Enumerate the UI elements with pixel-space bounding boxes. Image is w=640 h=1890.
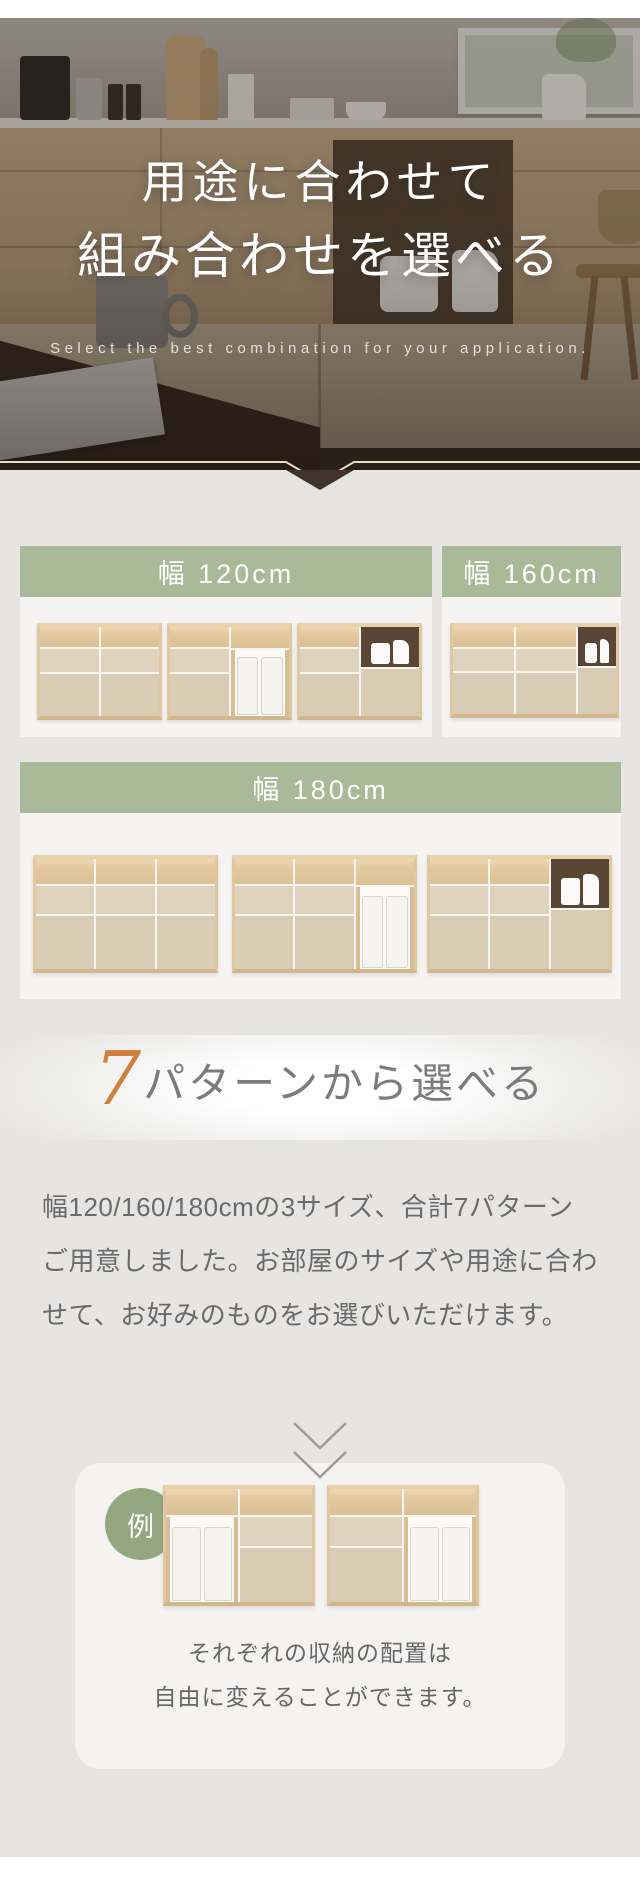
cabinet-image-120-c <box>297 623 422 720</box>
example-caption-line2: 自由に変えることができます。 <box>75 1675 565 1719</box>
hero-chevron-down <box>286 470 354 490</box>
hero-tagline: Select the best combination for your app… <box>0 340 640 357</box>
cabinet-image-160 <box>450 623 619 718</box>
patterns-paragraph: 幅120/160/180cmの3サイズ、合計7パターン ご用意しました。お部屋の… <box>42 1180 602 1342</box>
paragraph-line-3: せて、お好みのものをお選びいただけます。 <box>42 1288 602 1342</box>
hero-title-line2: 組み合わせを選べる <box>0 216 640 288</box>
paragraph-line-2: ご用意しました。お部屋のサイズや用途に合わ <box>42 1234 602 1288</box>
size-header-120: 幅 120cm <box>20 546 432 597</box>
size-header-180: 幅 180cm <box>20 762 621 813</box>
top-white-strip <box>0 0 640 18</box>
patterns-heading-number: 7 <box>94 1042 141 1116</box>
example-cabinet-right <box>327 1485 479 1606</box>
double-chevron-down-icon <box>292 1420 348 1482</box>
hero-section: 用途に合わせて 組み合わせを選べる Select the best combin… <box>0 18 640 470</box>
cabinet-image-180-c <box>427 855 612 973</box>
variants-panel-120 <box>20 597 432 737</box>
size-label-180: 幅 180cm <box>252 768 389 807</box>
example-panel: 例 それぞれの収納の配置は 自由に変えることができます。 <box>75 1463 565 1769</box>
cabinet-image-120-b <box>167 623 292 720</box>
example-cabinet-left <box>163 1485 315 1606</box>
cabinet-image-180-b <box>232 855 417 973</box>
variants-panel-160 <box>442 597 621 737</box>
bottom-white-strip <box>0 1857 640 1890</box>
size-header-160: 幅 160cm <box>442 546 621 597</box>
patterns-heading-text: パターンから選べる <box>143 1063 546 1105</box>
size-label-120: 幅 120cm <box>158 552 295 591</box>
variants-panel-180 <box>20 813 621 999</box>
paragraph-line-1: 幅120/160/180cmの3サイズ、合計7パターン <box>42 1180 602 1234</box>
product-page: 用途に合わせて 組み合わせを選べる Select the best combin… <box>0 0 640 1890</box>
example-caption: それぞれの収納の配置は 自由に変えることができます。 <box>75 1631 565 1719</box>
patterns-heading: 7 パターンから選べる <box>0 1042 640 1132</box>
hero-title-line1: 用途に合わせて <box>0 146 640 212</box>
cabinet-image-180-a <box>33 855 218 973</box>
size-label-160: 幅 160cm <box>463 552 600 591</box>
example-caption-line1: それぞれの収納の配置は <box>75 1631 565 1675</box>
cabinet-image-120-a <box>37 623 162 720</box>
